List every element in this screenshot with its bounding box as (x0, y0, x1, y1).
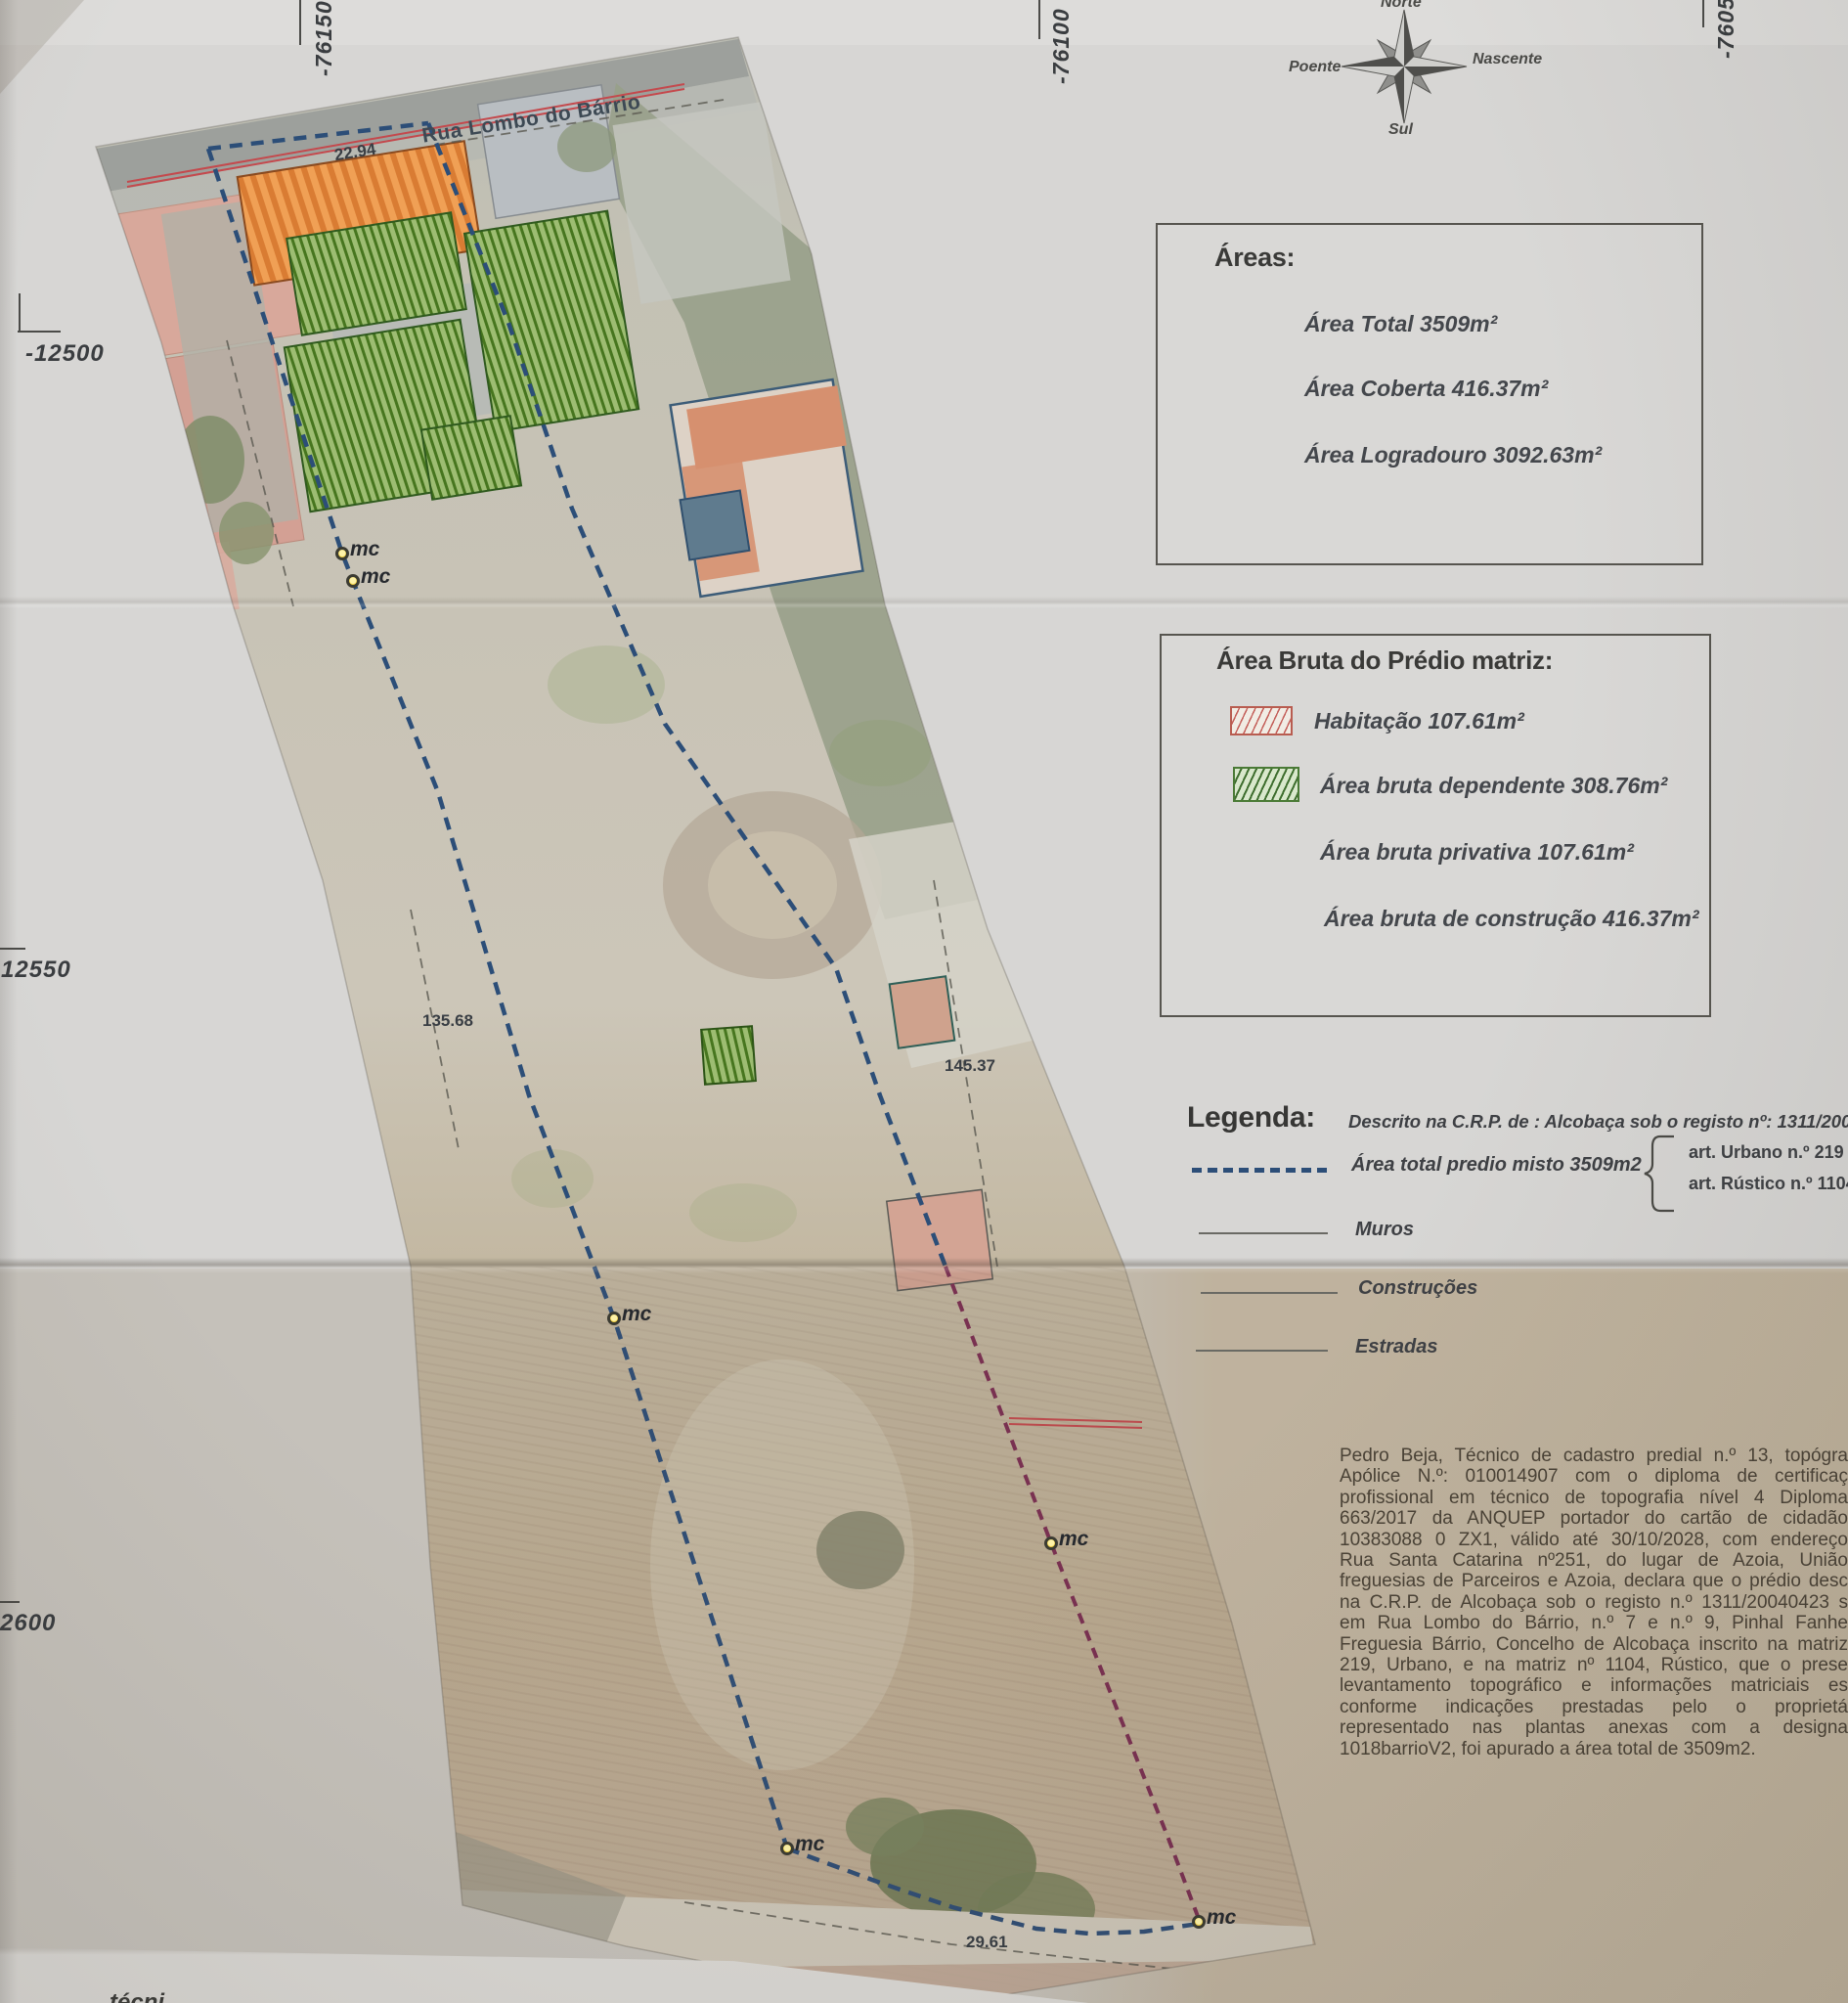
boundary-marker-mc: mc (1044, 1536, 1058, 1550)
areas-box: Áreas: Área Total 3509m² Área Coberta 41… (1156, 223, 1703, 565)
grid-label-x3: -76050 (1713, 0, 1739, 59)
muros-line-swatch (1199, 1232, 1328, 1234)
boundary-marker-mc: mc (780, 1842, 794, 1855)
legend-estradas: Estradas (1355, 1336, 1438, 1358)
greenhouse-hatched (701, 1026, 756, 1084)
compass-west-label: Poente (1289, 59, 1341, 76)
areas-box-title: Áreas: (1214, 243, 1295, 273)
area-construcao: Área bruta de construção 416.37m² (1324, 906, 1698, 932)
partial-text-bottom: técni (110, 1989, 164, 2003)
declaration-text: Pedro Beja, Técnico de cadastro predial … (1340, 1446, 1848, 1759)
area-logradouro: Área Logradouro 3092.63m² (1304, 442, 1602, 468)
dimension-east: 145.37 (945, 1056, 995, 1076)
compass-east-label: Nascente (1473, 51, 1542, 68)
legend-art-urbano: art. Urbano n.º 219 (1689, 1142, 1844, 1163)
hatch-swatch-dependente (1233, 767, 1299, 802)
legend-title: Legenda: (1187, 1101, 1315, 1135)
area-habitacao: Habitação 107.61m² (1314, 708, 1524, 734)
pool (681, 491, 750, 560)
dimension-south: 29.61 (966, 1933, 1008, 1952)
area-dependente: Área bruta dependente 308.76m² (1320, 773, 1667, 799)
area-privativa: Área bruta privativa 107.61m² (1320, 839, 1634, 866)
hatch-swatch-habitacao (1230, 706, 1293, 735)
marker-dot-icon (335, 547, 349, 560)
paper-fold-line (0, 1258, 1848, 1273)
legend-construcoes: Construções (1358, 1277, 1477, 1300)
paper-crease (0, 597, 1848, 608)
area-bruta-box: Área Bruta do Prédio matriz: Habitação 1… (1160, 634, 1711, 1017)
construcoes-line-swatch (1201, 1292, 1338, 1294)
legend-parcela: Área total predio misto 3509m2 (1351, 1154, 1642, 1177)
photographed-survey-plan: -76150 -76100 -76050 -12500 -12550 2600 … (0, 0, 1848, 2003)
estradas-line-swatch (1196, 1350, 1328, 1352)
boundary-marker-mc: mc (607, 1312, 621, 1325)
marker-dot-icon (607, 1312, 621, 1325)
boundary-marker-mc: mc (346, 574, 360, 588)
brace-icon (1635, 1133, 1694, 1215)
area-bruta-title: Área Bruta do Prédio matriz: (1216, 645, 1553, 676)
compass-north-label: Norte (1381, 0, 1422, 12)
legend-muros: Muros (1355, 1219, 1414, 1241)
legend-description: Descrito na C.R.P. de : Alcobaça sob o r… (1348, 1111, 1848, 1133)
area-total: Área Total 3509m² (1304, 311, 1497, 337)
area-coberta: Área Coberta 416.37m² (1304, 376, 1548, 402)
boundary-marker-mc: mc (335, 547, 349, 560)
grid-label-x2: -76100 (1048, 8, 1075, 84)
marker-dot-icon (1044, 1536, 1058, 1550)
shed (890, 976, 955, 1047)
boundary-marker-mc: mc (1192, 1915, 1206, 1929)
dimension-west: 135.68 (422, 1011, 473, 1031)
marker-dot-icon (1192, 1915, 1206, 1929)
compass-rose (1339, 2, 1470, 133)
legend-art-rustico: art. Rústico n.º 1104 (1689, 1174, 1848, 1194)
marker-dot-icon (780, 1842, 794, 1855)
marker-dot-icon (346, 574, 360, 588)
boundary-dash-swatch (1192, 1168, 1329, 1173)
grid-label-y1: -12500 (25, 340, 105, 368)
paper-edge-shade (0, 0, 18, 2003)
compass-south-label: Sul (1388, 121, 1413, 139)
grid-label-x1: -76150 (311, 0, 337, 76)
